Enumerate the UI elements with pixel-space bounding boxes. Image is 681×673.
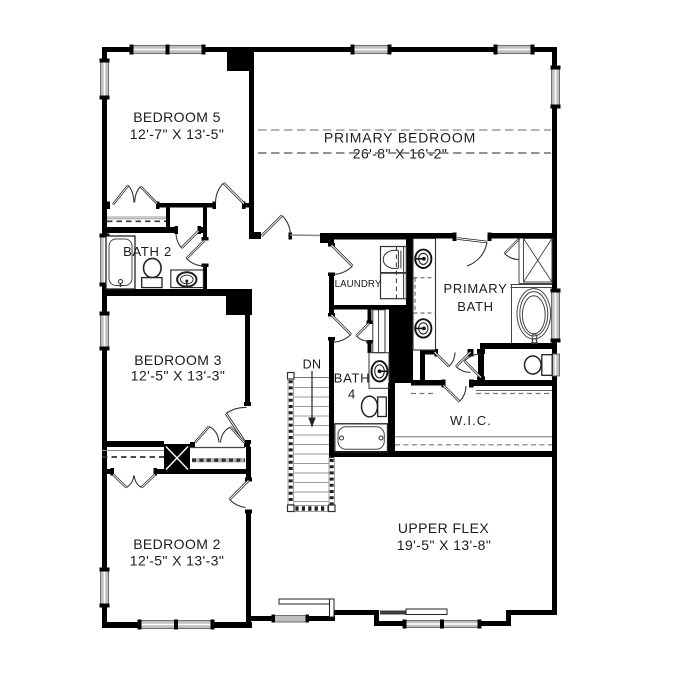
svg-text:4: 4	[348, 387, 356, 402]
svg-text:BATH 2: BATH 2	[123, 244, 172, 259]
svg-text:19'-5" X 13'-8": 19'-5" X 13'-8"	[397, 537, 491, 553]
svg-text:PRIMARY: PRIMARY	[444, 281, 508, 296]
svg-text:BEDROOM 3: BEDROOM 3	[134, 352, 222, 368]
svg-text:BEDROOM 2: BEDROOM 2	[133, 536, 221, 552]
svg-text:BEDROOM 5: BEDROOM 5	[133, 109, 221, 125]
svg-text:W.I.C.: W.I.C.	[450, 413, 492, 428]
svg-text:12'-7" X 13'-5": 12'-7" X 13'-5"	[130, 126, 224, 142]
svg-text:12'-5" X 13'-3": 12'-5" X 13'-3"	[130, 553, 224, 569]
svg-text:12'-5" X 13'-3": 12'-5" X 13'-3"	[131, 368, 225, 384]
svg-text:UPPER FLEX: UPPER FLEX	[398, 520, 489, 536]
svg-text:BATH: BATH	[334, 371, 371, 386]
svg-text:BATH: BATH	[457, 299, 494, 314]
svg-text:PRIMARY BEDROOM: PRIMARY BEDROOM	[324, 130, 476, 146]
svg-text:DN: DN	[303, 358, 322, 372]
svg-text:LAUNDRY: LAUNDRY	[335, 279, 382, 290]
